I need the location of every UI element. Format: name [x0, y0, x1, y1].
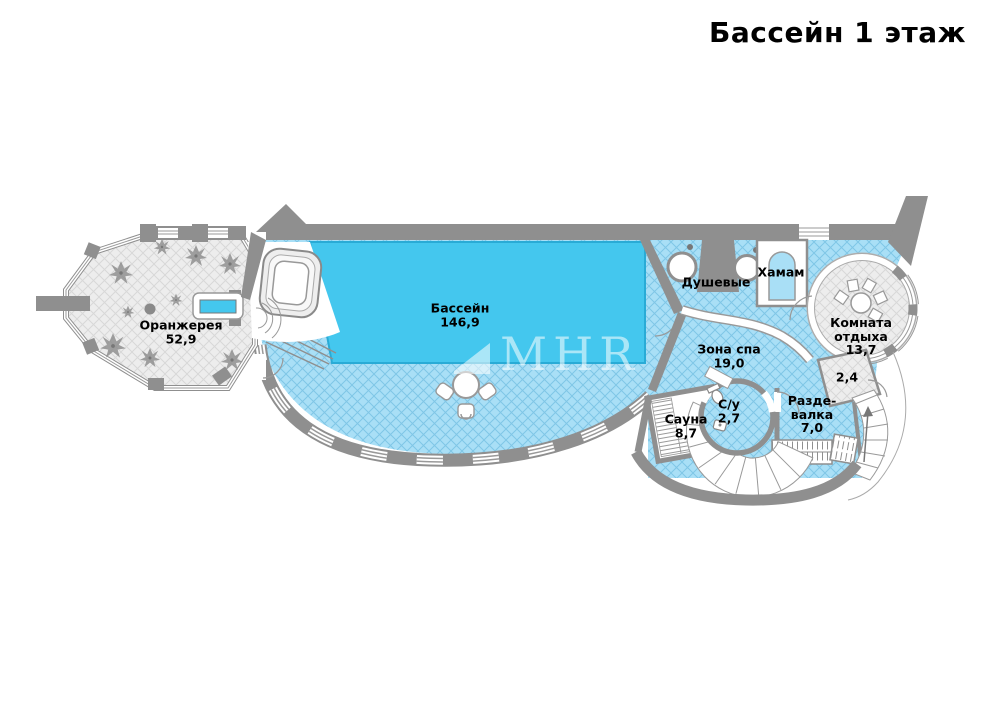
- shower-head-icon: [687, 244, 693, 250]
- top-wall-window: [799, 224, 829, 240]
- room-area: 2,7: [718, 411, 740, 425]
- room-area: 13,7: [817, 343, 905, 357]
- room-name: Оранжерея: [139, 319, 222, 333]
- floor-plan-page: MHR Бассейн 1 этаж Оранжерея 52,9 Бассей…: [0, 0, 1000, 707]
- room-area: 7,0: [781, 421, 843, 435]
- room-label-lounge: Комната отдыха 13,7: [817, 316, 905, 357]
- room-area: 19,0: [697, 356, 760, 370]
- room-label-hamam: Хамам: [758, 265, 805, 279]
- room-name: Хамам: [758, 265, 805, 279]
- round-table: [453, 372, 479, 398]
- room-label-showers: Душевые: [682, 275, 751, 289]
- round-table: [851, 293, 871, 313]
- page-title: Бассейн 1 этаж: [709, 16, 966, 49]
- orangery-left-wall-stub: [36, 296, 90, 311]
- room-label-wc: С/у 2,7: [718, 398, 740, 425]
- room-label-orangery: Оранжерея 52,9: [139, 319, 222, 346]
- orangery-fountain: [193, 293, 243, 319]
- chair: [847, 279, 859, 292]
- room-area: 52,9: [139, 332, 222, 346]
- room-name: Бассейн: [431, 302, 490, 316]
- room-label-sauna: Сауна 8,7: [665, 413, 708, 440]
- room-name: Комната отдыха: [817, 316, 905, 343]
- room-name: С/у: [718, 398, 740, 412]
- chair: [458, 404, 474, 418]
- orangery-room: [36, 224, 255, 390]
- room-area: 146,9: [431, 315, 490, 329]
- wall-gable: [256, 204, 314, 232]
- room-area: 8,7: [665, 426, 708, 440]
- jacuzzi-tub: [258, 247, 323, 319]
- deck-door-gap: [254, 354, 266, 380]
- room-label-changing: Разде-валка 7,0: [781, 394, 843, 435]
- room-name: Зона спа: [697, 343, 760, 357]
- orangery-planter: [145, 304, 156, 315]
- room-area: 2,4: [836, 370, 858, 384]
- room-label-spa: Зона спа 19,0: [697, 343, 760, 370]
- room-label-pool: Бассейн 146,9: [431, 302, 490, 329]
- room-name: Разде-валка: [781, 394, 843, 421]
- room-name: Душевые: [682, 275, 751, 289]
- room-label-vestibule: 2,4: [836, 370, 858, 384]
- room-name: Сауна: [665, 413, 708, 427]
